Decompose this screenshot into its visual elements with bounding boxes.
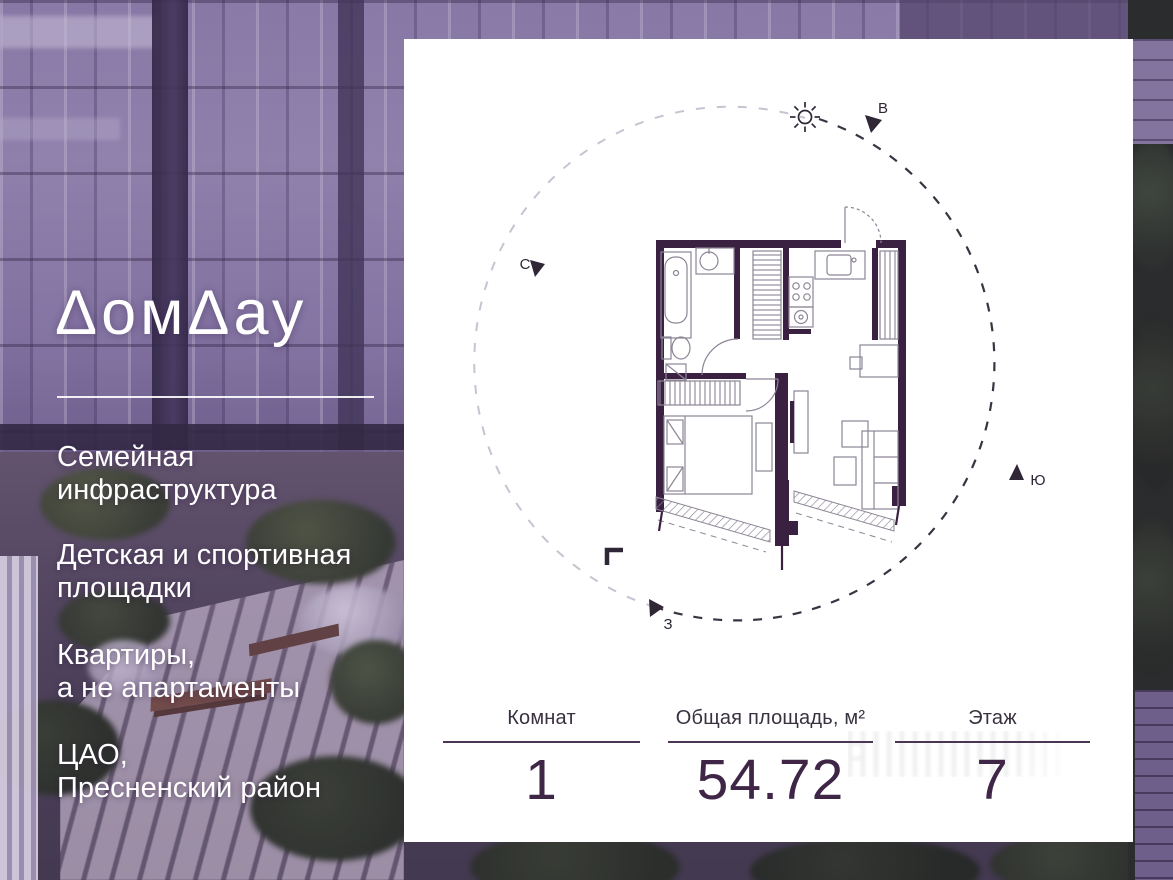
compass-north-label: С — [520, 256, 531, 273]
feature-line: Семейная — [57, 441, 417, 474]
stat-floor: Этаж 7 — [895, 707, 1090, 837]
logo-divider — [57, 396, 374, 398]
bedroom — [658, 379, 778, 494]
feature-line: ЦАО, — [57, 739, 417, 772]
compass-pointer-north — [530, 260, 545, 277]
feature-flats-not-apartments: Квартиры, а не апартаменты — [57, 639, 417, 705]
feature-family-infrastructure: Семейная инфраструктура — [57, 441, 417, 507]
toilet-icon — [672, 337, 690, 359]
corner-mark — [607, 550, 623, 565]
bedroom-door-arc — [746, 379, 778, 411]
stat-rooms-value: 1 — [443, 752, 640, 809]
dresser-icon — [756, 423, 772, 471]
desk-icon — [860, 345, 898, 377]
stove-icon — [789, 277, 813, 307]
feature-district: ЦАО, Пресненский район — [57, 739, 417, 805]
feature-line: инфраструктура — [57, 474, 417, 507]
coffee-table-icon — [834, 457, 856, 485]
floor-plan: В С Ю З — [404, 39, 1133, 699]
bathroom-door-arc — [702, 339, 738, 375]
feature-line: площадки — [57, 572, 417, 605]
hall-wardrobe — [753, 251, 781, 339]
feature-line: Пресненский район — [57, 772, 417, 805]
bed-icon — [664, 416, 752, 494]
stat-area-label: Общая площадь, м² — [668, 707, 873, 730]
brand-logo: ΔомΔау — [55, 282, 385, 345]
entrance-door — [845, 207, 881, 243]
compass-pointer-east — [865, 115, 882, 133]
sink-icon — [700, 252, 718, 270]
kitchen-sink-icon — [827, 255, 851, 275]
feature-playgrounds: Детская и спортивная площадки — [57, 539, 417, 605]
stat-floor-value: 7 — [895, 752, 1090, 809]
feature-line: Детская и спортивная — [57, 539, 417, 572]
stat-underline — [895, 741, 1090, 743]
armchair-icon — [842, 421, 868, 447]
listing-image: ΔомΔау Семейная инфраструктура Детская и… — [0, 0, 1173, 880]
stat-area-value: 54.72 — [668, 752, 873, 809]
bath-counter — [696, 248, 734, 274]
stat-underline — [668, 741, 873, 743]
tv-icon — [790, 401, 794, 443]
bathroom — [661, 248, 738, 380]
stats-row: Комнат 1 Общая площадь, м² 54.72 Этаж 7 — [404, 699, 1133, 842]
stat-underline — [443, 741, 640, 743]
stat-rooms-label: Комнат — [443, 707, 640, 730]
compass-ring — [474, 107, 994, 621]
compass-west-label: З — [663, 616, 672, 633]
compass-south-label: Ю — [1030, 472, 1045, 489]
feature-line: а не апартаменты — [57, 672, 417, 705]
compass-pointer-south — [1009, 464, 1024, 480]
compass-pointer-west — [649, 599, 664, 617]
stat-floor-label: Этаж — [895, 707, 1090, 730]
bedroom-closet — [658, 381, 740, 405]
tv-stand-icon — [794, 391, 808, 453]
kitchen — [789, 251, 865, 327]
stat-area: Общая площадь, м² 54.72 — [668, 707, 873, 837]
entry-closet — [880, 251, 898, 339]
stat-rooms: Комнат 1 — [443, 707, 640, 837]
living-room — [790, 345, 898, 509]
floorplan-card[interactable]: В С Ю З — [404, 39, 1133, 842]
compass-east-label: В — [878, 100, 888, 117]
feature-line: Квартиры, — [57, 639, 417, 672]
